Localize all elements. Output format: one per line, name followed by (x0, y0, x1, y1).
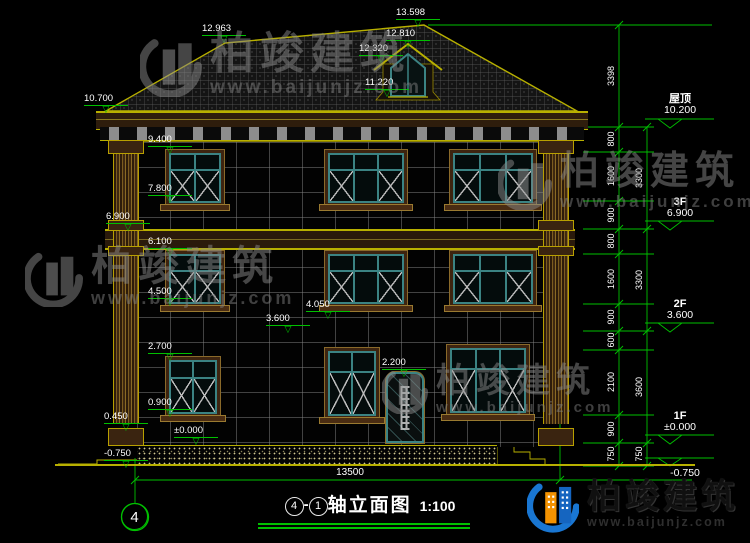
level-label-2f-window-top: 6.100▽ (148, 237, 192, 256)
level-label-canopy-bottom: 3.600▽ (266, 314, 310, 333)
level-marker-icon: ▽ (106, 224, 150, 231)
dim-segment: 3398 (606, 66, 616, 86)
door-panel-detail (401, 386, 410, 430)
level-label-ground-floor: ±0.000▽ (174, 426, 218, 445)
level-marker-icon: ▽ (148, 410, 192, 417)
window-sill (319, 204, 413, 211)
title-name: 轴立面图 (328, 495, 412, 516)
level-marker-icon: ▽ (148, 354, 192, 361)
dim-segment: 2100 (606, 372, 616, 392)
axis-bubble-4: 4 (121, 503, 148, 530)
elevation-drawing-canvas: 13.598▽ 12.963▽ 12.810▽ 12.320▽ 11.220▽ … (0, 0, 750, 543)
level-marker-icon: ▽ (148, 147, 192, 154)
level-marker-icon: ▽ (104, 424, 148, 431)
ground-line (55, 464, 695, 466)
level-label-1f-left-window-top: 2.700▽ (148, 342, 192, 361)
title-scale: 1:100 (420, 498, 456, 514)
dim-segment: 750 (606, 446, 616, 461)
brand-logo: 柏竣建筑 www.baijunjz.com (527, 478, 739, 534)
left-pilaster (113, 152, 139, 424)
dim-segment: 600 (606, 332, 616, 347)
level-marker-icon: ▽ (148, 299, 192, 306)
window-3f-center (324, 149, 408, 207)
level-label-site-ground: -0.750▽ (104, 449, 148, 468)
level-label-1f-window-sill: 0.900▽ (148, 398, 192, 417)
level-marker-icon: ▽ (382, 370, 426, 377)
dim-segment: 3300 (634, 270, 644, 290)
window-sill (441, 414, 535, 421)
entry-door (386, 372, 424, 443)
level-marker-icon: ▽ (359, 56, 403, 63)
dim-segment: 900 (606, 309, 616, 324)
title-underline (258, 523, 470, 525)
dim-segment: 3600 (634, 377, 644, 397)
right-pilaster-mid-capital (538, 220, 574, 231)
level-label-2f-window-sill: 4.500▽ (148, 287, 192, 306)
level-label-main-eave: 10.700▽ (84, 94, 128, 113)
right-pilaster-mid-base (538, 246, 574, 256)
level-label-dormer-eave: 12.320▽ (359, 44, 403, 63)
title-axis-to: 1 (309, 497, 328, 516)
title-underline (258, 527, 470, 529)
drawing-title: 4-1轴立面图1:100 (235, 490, 505, 517)
dim-segment: 800 (606, 131, 616, 146)
right-pilaster (543, 152, 569, 424)
level-marker-icon: ▽ (84, 106, 128, 113)
dim-segment: 800 (606, 233, 616, 248)
window-sill (444, 305, 542, 312)
left-pilaster-mid-base (108, 246, 144, 256)
window-sill (444, 204, 542, 211)
storey-marker-2f: 2F3.600 (645, 298, 715, 321)
dim-segment: 1600 (606, 166, 616, 186)
level-marker-icon: ▽ (174, 438, 218, 445)
level-marker-icon: ▽ (266, 326, 310, 333)
level-label-peak: 13.598▽ (396, 8, 440, 27)
window-sill (160, 204, 230, 211)
level-label-3f-window-top: 9.400▽ (148, 135, 192, 154)
dim-segment: 3300 (634, 168, 644, 188)
level-label-dormer-sill: 11.220▽ (365, 78, 409, 97)
title-separator: - (304, 496, 309, 513)
level-marker-icon: ▽ (104, 461, 148, 468)
right-pilaster-pedestal (538, 428, 574, 446)
dim-segment: 750 (634, 446, 644, 461)
left-pilaster-capital (108, 140, 144, 154)
level-label-left-ridge: 12.963▽ (202, 24, 246, 43)
storey-marker-1f: 1F±0.000 (645, 410, 715, 433)
level-marker-icon: ▽ (396, 20, 440, 27)
brand-logo-icon (527, 478, 579, 534)
level-label-plinth-top: 0.450▽ (104, 412, 148, 431)
level-marker-icon: ▽ (148, 249, 192, 256)
level-marker-icon: ▽ (306, 312, 350, 319)
level-marker-icon: ▽ (148, 196, 192, 203)
right-pilaster-capital (538, 140, 574, 154)
dim-segment: 900 (606, 207, 616, 222)
level-marker-icon: ▽ (202, 36, 246, 43)
level-label-door-top: 2.200▽ (382, 358, 426, 377)
dim-segment: 1600 (606, 269, 616, 289)
level-label-3f-floor: 6.900▽ (106, 212, 150, 231)
plinth-hatch (137, 445, 497, 466)
storey-marker-3f: 3F6.900 (645, 196, 715, 219)
window-1f-right (446, 344, 530, 417)
overall-width-dimension: 13500 (320, 467, 380, 478)
window-3f-right (449, 149, 537, 207)
main-roof (106, 25, 577, 111)
window-2f-right (449, 250, 537, 308)
level-marker-icon: ▽ (365, 90, 409, 97)
eave-molding-line (96, 119, 588, 120)
level-label-3f-window-sill: 7.800▽ (148, 184, 192, 203)
storey-marker-roof: 屋顶10.200 (645, 93, 715, 116)
window-sill (319, 417, 385, 424)
level-label-canopy-top: 4.050▽ (306, 300, 350, 319)
dim-segment: 900 (606, 421, 616, 436)
window-1f-center (324, 347, 380, 420)
title-axis-from: 4 (285, 497, 304, 516)
